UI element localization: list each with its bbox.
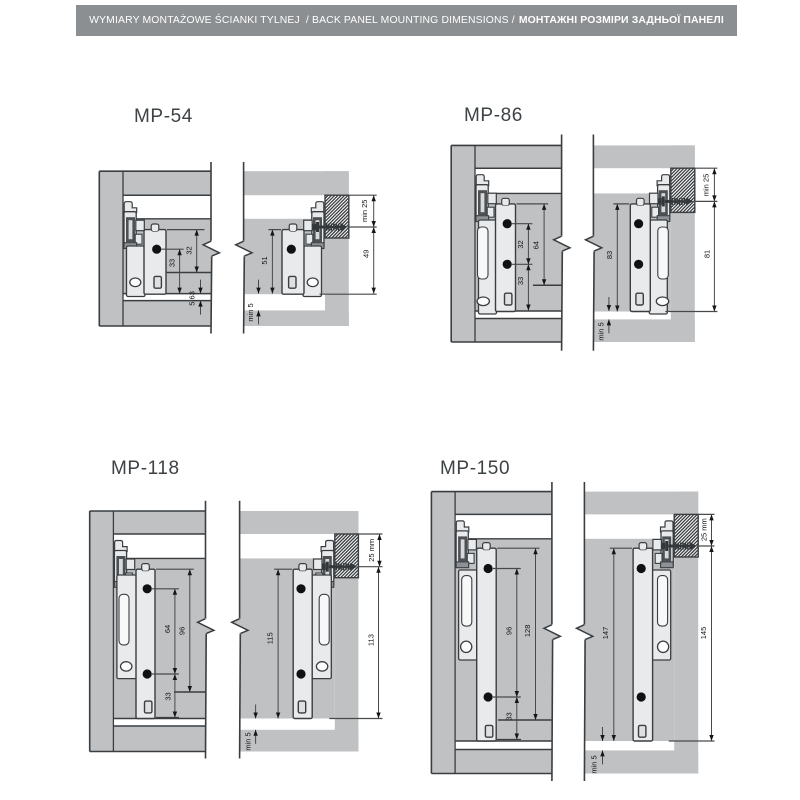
svg-text:25 mm: 25 mm bbox=[367, 539, 376, 562]
svg-text:min 5: min 5 bbox=[246, 303, 255, 321]
svg-text:113: 113 bbox=[367, 634, 376, 646]
svg-text:min 5: min 5 bbox=[590, 755, 599, 773]
svg-text:64: 64 bbox=[163, 625, 172, 633]
svg-text:33: 33 bbox=[516, 277, 525, 285]
svg-text:32: 32 bbox=[516, 240, 525, 248]
svg-text:MP-150: MP-150 bbox=[440, 458, 510, 479]
svg-text:115: 115 bbox=[266, 632, 275, 644]
svg-text:33: 33 bbox=[168, 259, 177, 267]
svg-text:25 mm: 25 mm bbox=[700, 518, 709, 541]
svg-text:min 25: min 25 bbox=[360, 200, 369, 223]
svg-text:128: 128 bbox=[523, 625, 532, 638]
svg-text:MP-86: MP-86 bbox=[464, 105, 523, 126]
svg-text:145: 145 bbox=[699, 627, 708, 640]
svg-text:5.63: 5.63 bbox=[188, 291, 197, 306]
svg-text:min 5: min 5 bbox=[244, 732, 253, 750]
svg-text:51: 51 bbox=[260, 256, 269, 264]
svg-text:81: 81 bbox=[702, 250, 711, 258]
svg-text:64: 64 bbox=[531, 241, 540, 249]
svg-text:83: 83 bbox=[605, 251, 614, 259]
svg-text:147: 147 bbox=[601, 627, 610, 640]
svg-text:96: 96 bbox=[505, 627, 514, 635]
svg-text:MP-54: MP-54 bbox=[134, 106, 193, 127]
svg-text:MP-118: MP-118 bbox=[111, 458, 180, 479]
svg-text:49: 49 bbox=[362, 250, 371, 258]
svg-text:32: 32 bbox=[184, 246, 193, 254]
svg-text:min 5: min 5 bbox=[597, 322, 606, 340]
svg-text:min 25: min 25 bbox=[701, 174, 710, 197]
svg-text:33: 33 bbox=[163, 692, 172, 700]
svg-text:96: 96 bbox=[178, 627, 187, 635]
svg-text:33: 33 bbox=[505, 712, 514, 720]
